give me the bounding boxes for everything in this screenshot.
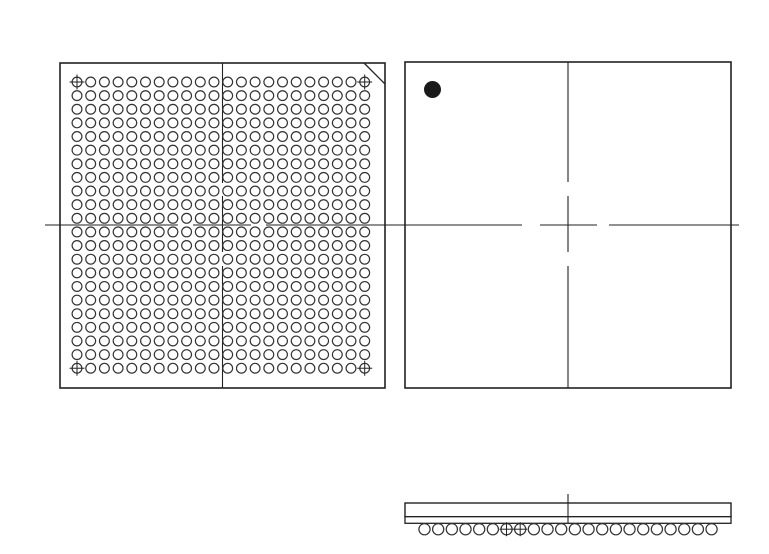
ball bbox=[168, 173, 178, 183]
ball bbox=[182, 213, 192, 223]
ball bbox=[250, 145, 260, 155]
ball bbox=[291, 350, 301, 360]
ball bbox=[278, 295, 288, 305]
ball bbox=[332, 118, 342, 128]
ball bbox=[278, 118, 288, 128]
ball bbox=[346, 309, 356, 319]
ball bbox=[264, 77, 274, 87]
solder-ball bbox=[446, 524, 457, 535]
ball bbox=[223, 309, 233, 319]
ball bbox=[291, 200, 301, 210]
ball bbox=[305, 350, 315, 360]
ball bbox=[223, 363, 233, 373]
ball bbox=[278, 200, 288, 210]
ball bbox=[319, 295, 329, 305]
ball bbox=[319, 200, 329, 210]
ball bbox=[332, 227, 342, 237]
ball bbox=[127, 254, 137, 264]
ball bbox=[209, 186, 219, 196]
ball bbox=[195, 241, 205, 251]
ball bbox=[223, 268, 233, 278]
ball bbox=[113, 336, 123, 346]
ball bbox=[291, 145, 301, 155]
ball bbox=[154, 336, 164, 346]
ball bbox=[264, 227, 274, 237]
ball bbox=[141, 145, 151, 155]
top-view bbox=[396, 62, 739, 388]
ball bbox=[182, 282, 192, 292]
ball bbox=[168, 322, 178, 332]
ball bbox=[72, 145, 82, 155]
ball bbox=[100, 77, 110, 87]
ball bbox=[237, 268, 247, 278]
ball bbox=[291, 295, 301, 305]
ball bbox=[264, 268, 274, 278]
ball bbox=[86, 350, 96, 360]
ball bbox=[319, 268, 329, 278]
ball bbox=[72, 336, 82, 346]
ball bbox=[86, 322, 96, 332]
ball bbox=[141, 213, 151, 223]
ball bbox=[154, 159, 164, 169]
ball bbox=[154, 309, 164, 319]
ball bbox=[278, 213, 288, 223]
ball bbox=[86, 295, 96, 305]
ball bbox=[100, 132, 110, 142]
ball bbox=[113, 363, 123, 373]
ball bbox=[223, 350, 233, 360]
ball bbox=[72, 322, 82, 332]
ball bbox=[182, 322, 192, 332]
ball bbox=[223, 118, 233, 128]
ball bbox=[72, 118, 82, 128]
ball bbox=[305, 200, 315, 210]
solder-ball bbox=[679, 524, 690, 535]
ball bbox=[278, 309, 288, 319]
ball bbox=[113, 213, 123, 223]
ball bbox=[154, 118, 164, 128]
ball bbox=[250, 241, 260, 251]
ball bbox=[86, 282, 96, 292]
ball bbox=[72, 350, 82, 360]
ball bbox=[168, 227, 178, 237]
ball bbox=[127, 295, 137, 305]
ball bbox=[332, 241, 342, 251]
ball bbox=[168, 159, 178, 169]
ball bbox=[86, 91, 96, 101]
ball bbox=[113, 282, 123, 292]
ball bbox=[72, 159, 82, 169]
ball bbox=[127, 227, 137, 237]
ball bbox=[72, 213, 82, 223]
ball bbox=[209, 336, 219, 346]
ball bbox=[113, 322, 123, 332]
ball bbox=[100, 322, 110, 332]
ball bbox=[278, 227, 288, 237]
ball bbox=[360, 295, 370, 305]
ball bbox=[291, 77, 301, 87]
ball bbox=[250, 227, 260, 237]
ball bbox=[278, 336, 288, 346]
ball bbox=[182, 91, 192, 101]
ball bbox=[72, 268, 82, 278]
ball bbox=[154, 268, 164, 278]
solder-ball bbox=[474, 524, 485, 535]
ball bbox=[291, 186, 301, 196]
ball bbox=[346, 322, 356, 332]
ball bbox=[127, 213, 137, 223]
ball bbox=[305, 336, 315, 346]
ball bbox=[305, 268, 315, 278]
ball bbox=[154, 322, 164, 332]
ball bbox=[86, 173, 96, 183]
ball bbox=[291, 282, 301, 292]
ball bbox=[195, 145, 205, 155]
ball bbox=[346, 118, 356, 128]
ball bbox=[72, 104, 82, 114]
ball bbox=[319, 282, 329, 292]
ball bbox=[209, 363, 219, 373]
ball bbox=[168, 363, 178, 373]
ball bbox=[346, 363, 356, 373]
ball bbox=[195, 336, 205, 346]
ball bbox=[291, 254, 301, 264]
ball bbox=[223, 159, 233, 169]
ball bbox=[168, 213, 178, 223]
ball bbox=[291, 322, 301, 332]
ball bbox=[141, 268, 151, 278]
ball bbox=[195, 118, 205, 128]
ball bbox=[86, 118, 96, 128]
ball bbox=[154, 77, 164, 87]
solder-ball bbox=[610, 524, 621, 535]
ball bbox=[346, 254, 356, 264]
ball bbox=[86, 77, 96, 87]
ball bbox=[264, 145, 274, 155]
ball bbox=[223, 254, 233, 264]
ball bbox=[332, 77, 342, 87]
ball bbox=[291, 104, 301, 114]
ball bbox=[209, 241, 219, 251]
ball bbox=[291, 309, 301, 319]
ball bbox=[237, 145, 247, 155]
ball bbox=[168, 350, 178, 360]
ball bbox=[168, 118, 178, 128]
ball bbox=[360, 227, 370, 237]
ball bbox=[319, 173, 329, 183]
ball bbox=[346, 227, 356, 237]
ball bbox=[100, 186, 110, 196]
bottom-view bbox=[45, 63, 398, 388]
ball bbox=[319, 254, 329, 264]
ball bbox=[278, 104, 288, 114]
ball bbox=[154, 254, 164, 264]
ball bbox=[278, 282, 288, 292]
ball bbox=[168, 200, 178, 210]
ball bbox=[100, 213, 110, 223]
ball bbox=[195, 363, 205, 373]
ball bbox=[141, 363, 151, 373]
ball bbox=[250, 295, 260, 305]
ball bbox=[319, 350, 329, 360]
ball bbox=[154, 186, 164, 196]
ball bbox=[195, 254, 205, 264]
solder-ball bbox=[583, 524, 594, 535]
ball bbox=[319, 104, 329, 114]
ball bbox=[182, 200, 192, 210]
ball bbox=[168, 145, 178, 155]
ball bbox=[113, 91, 123, 101]
ball bbox=[332, 254, 342, 264]
ball bbox=[346, 241, 356, 251]
ball bbox=[168, 104, 178, 114]
ball bbox=[278, 268, 288, 278]
ball bbox=[113, 118, 123, 128]
ball bbox=[346, 336, 356, 346]
ball bbox=[264, 336, 274, 346]
ball bbox=[332, 336, 342, 346]
ball bbox=[264, 363, 274, 373]
ball bbox=[332, 350, 342, 360]
ball bbox=[168, 268, 178, 278]
ball bbox=[305, 213, 315, 223]
ball bbox=[264, 322, 274, 332]
ball bbox=[223, 227, 233, 237]
ball bbox=[195, 213, 205, 223]
ball bbox=[346, 200, 356, 210]
ball bbox=[182, 350, 192, 360]
ball bbox=[72, 295, 82, 305]
ball bbox=[237, 173, 247, 183]
ball bbox=[305, 322, 315, 332]
ball bbox=[141, 77, 151, 87]
ball bbox=[360, 118, 370, 128]
ball bbox=[360, 336, 370, 346]
solder-ball bbox=[460, 524, 471, 535]
ball bbox=[360, 213, 370, 223]
ball bbox=[332, 200, 342, 210]
ball bbox=[209, 350, 219, 360]
ball bbox=[209, 213, 219, 223]
ball bbox=[237, 186, 247, 196]
ball bbox=[100, 173, 110, 183]
ball bbox=[209, 77, 219, 87]
ball bbox=[168, 336, 178, 346]
ball bbox=[264, 309, 274, 319]
ball bbox=[346, 350, 356, 360]
ball bbox=[209, 159, 219, 169]
ball bbox=[154, 295, 164, 305]
ball bbox=[305, 159, 315, 169]
ball bbox=[168, 241, 178, 251]
ball bbox=[86, 309, 96, 319]
solder-ball bbox=[597, 524, 608, 535]
ball bbox=[264, 104, 274, 114]
ball bbox=[86, 227, 96, 237]
ball bbox=[154, 350, 164, 360]
ball bbox=[278, 363, 288, 373]
ball bbox=[86, 132, 96, 142]
ball bbox=[195, 104, 205, 114]
ball bbox=[305, 132, 315, 142]
ball bbox=[223, 213, 233, 223]
ball bbox=[319, 213, 329, 223]
solder-ball bbox=[651, 524, 662, 535]
ball bbox=[168, 91, 178, 101]
ball bbox=[141, 173, 151, 183]
ball bbox=[209, 254, 219, 264]
ball bbox=[141, 295, 151, 305]
ball bbox=[237, 254, 247, 264]
ball bbox=[127, 282, 137, 292]
ball bbox=[86, 213, 96, 223]
ball bbox=[100, 200, 110, 210]
ball bbox=[223, 241, 233, 251]
ball bbox=[100, 91, 110, 101]
ball bbox=[223, 336, 233, 346]
ball bbox=[223, 282, 233, 292]
ball bbox=[264, 132, 274, 142]
ball bbox=[113, 268, 123, 278]
ball bbox=[113, 200, 123, 210]
ball bbox=[182, 254, 192, 264]
ball bbox=[86, 254, 96, 264]
ball bbox=[86, 336, 96, 346]
ball bbox=[113, 227, 123, 237]
ball bbox=[305, 118, 315, 128]
ball bbox=[127, 159, 137, 169]
ball bbox=[291, 173, 301, 183]
ball bbox=[154, 145, 164, 155]
ball bbox=[182, 309, 192, 319]
ball bbox=[182, 77, 192, 87]
ball bbox=[127, 350, 137, 360]
ball bbox=[72, 241, 82, 251]
ball bbox=[223, 200, 233, 210]
ball bbox=[278, 77, 288, 87]
ball bbox=[237, 322, 247, 332]
drawing-svg bbox=[0, 0, 769, 554]
ball bbox=[113, 104, 123, 114]
ball bbox=[346, 268, 356, 278]
ball bbox=[264, 213, 274, 223]
ball bbox=[264, 254, 274, 264]
ball bbox=[209, 145, 219, 155]
ball bbox=[182, 118, 192, 128]
ball bbox=[182, 132, 192, 142]
ball bbox=[168, 282, 178, 292]
ball bbox=[195, 295, 205, 305]
ball bbox=[264, 282, 274, 292]
ball bbox=[195, 91, 205, 101]
solder-ball bbox=[624, 524, 635, 535]
pin1-indicator-dot bbox=[424, 81, 441, 98]
ball bbox=[182, 268, 192, 278]
ball bbox=[127, 145, 137, 155]
ball bbox=[237, 213, 247, 223]
ball bbox=[237, 132, 247, 142]
ball bbox=[332, 186, 342, 196]
ball bbox=[72, 186, 82, 196]
ball bbox=[195, 350, 205, 360]
ball bbox=[141, 282, 151, 292]
ball bbox=[305, 295, 315, 305]
ball bbox=[154, 213, 164, 223]
ball bbox=[264, 295, 274, 305]
ball bbox=[250, 213, 260, 223]
package-outline-drawing bbox=[0, 0, 769, 554]
solder-ball bbox=[665, 524, 676, 535]
ball bbox=[168, 186, 178, 196]
ball bbox=[141, 118, 151, 128]
ball bbox=[100, 145, 110, 155]
solder-ball bbox=[487, 524, 498, 535]
ball bbox=[332, 159, 342, 169]
ball bbox=[332, 145, 342, 155]
ball bbox=[154, 363, 164, 373]
ball bbox=[250, 363, 260, 373]
ball bbox=[223, 104, 233, 114]
ball bbox=[182, 241, 192, 251]
ball bbox=[86, 104, 96, 114]
ball bbox=[182, 104, 192, 114]
ball bbox=[72, 91, 82, 101]
ball bbox=[223, 186, 233, 196]
ball bbox=[250, 104, 260, 114]
ball bbox=[237, 336, 247, 346]
ball bbox=[127, 309, 137, 319]
ball bbox=[237, 118, 247, 128]
ball bbox=[332, 104, 342, 114]
ball bbox=[154, 227, 164, 237]
ball bbox=[195, 132, 205, 142]
ball bbox=[278, 145, 288, 155]
ball bbox=[195, 173, 205, 183]
ball bbox=[250, 282, 260, 292]
ball bbox=[154, 241, 164, 251]
ball bbox=[346, 104, 356, 114]
ball bbox=[141, 241, 151, 251]
ball bbox=[237, 295, 247, 305]
ball bbox=[278, 241, 288, 251]
ball bbox=[113, 350, 123, 360]
solder-ball bbox=[542, 524, 553, 535]
ball bbox=[360, 132, 370, 142]
solder-ball bbox=[433, 524, 444, 535]
ball bbox=[100, 104, 110, 114]
ball bbox=[319, 145, 329, 155]
ball bbox=[100, 227, 110, 237]
ball bbox=[127, 268, 137, 278]
ball bbox=[305, 173, 315, 183]
ball bbox=[278, 159, 288, 169]
ball bbox=[195, 77, 205, 87]
ball bbox=[100, 363, 110, 373]
ball bbox=[319, 118, 329, 128]
ball bbox=[113, 241, 123, 251]
ball bbox=[291, 336, 301, 346]
ball bbox=[305, 282, 315, 292]
ball bbox=[100, 309, 110, 319]
ball bbox=[195, 159, 205, 169]
ball bbox=[305, 104, 315, 114]
ball bbox=[250, 186, 260, 196]
ball bbox=[332, 363, 342, 373]
ball bbox=[237, 227, 247, 237]
ball bbox=[223, 91, 233, 101]
ball bbox=[264, 241, 274, 251]
ball bbox=[250, 118, 260, 128]
